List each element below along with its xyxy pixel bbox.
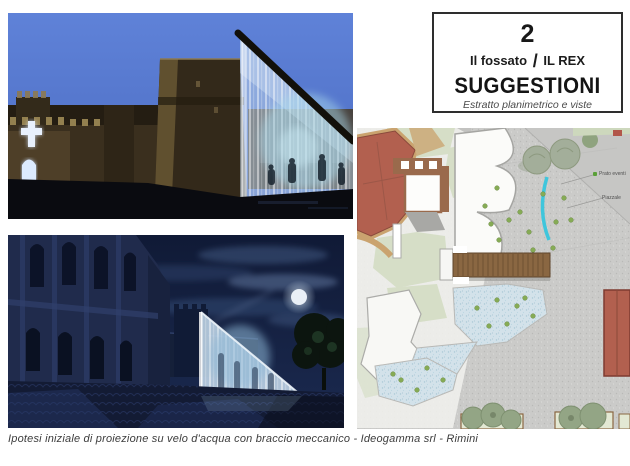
green-tree-marker-icon <box>593 172 597 176</box>
caption: Ipotesi iniziale di proiezione su velo d… <box>8 433 608 445</box>
photo-water-screen-square <box>8 235 344 428</box>
section-number: 2 <box>434 21 621 47</box>
map-label-piazzale: Piazzale <box>602 195 621 201</box>
section-title: SUGGESTIONI <box>441 73 615 99</box>
site-plan-drawing <box>357 128 630 429</box>
lit-portal <box>22 160 36 182</box>
roof-right-edge <box>604 290 630 376</box>
slash-separator: / <box>531 51 540 71</box>
location-label: Il fossato <box>470 53 527 68</box>
presentation-board: 2 Il fossato / IL REX SUGGESTIONI Estrat… <box>0 0 630 466</box>
photo-water-veil-castle <box>8 13 353 219</box>
map-label-prato-eventi: Prato eventi <box>593 171 626 177</box>
moonlit-square-scene <box>8 235 344 428</box>
section-header-card: 2 Il fossato / IL REX SUGGESTIONI Estrat… <box>432 12 623 113</box>
venue-label: IL REX <box>543 53 585 68</box>
site-plan-map: Prato eventi Piazzale <box>357 128 630 429</box>
section-subtitle: Estratto planimetrico e viste <box>434 99 621 111</box>
night-castle-scene <box>8 13 353 219</box>
section-location-line: Il fossato / IL REX <box>434 51 621 72</box>
moon <box>282 280 316 314</box>
